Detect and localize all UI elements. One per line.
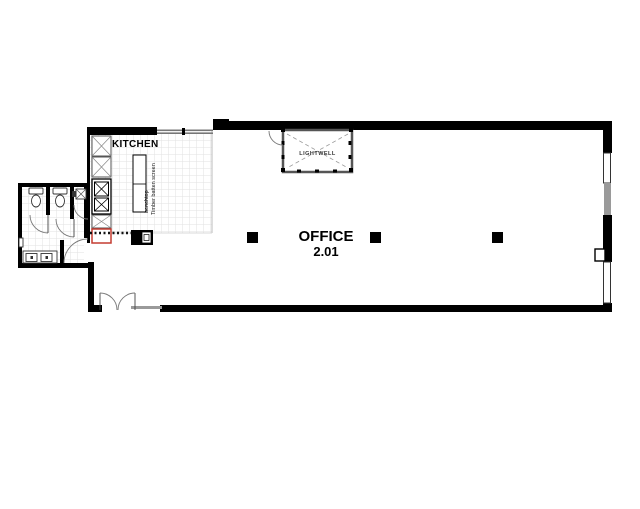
bathroom-top-wall [20, 183, 88, 187]
column-marker [370, 232, 381, 243]
fridge-red-outline [92, 229, 111, 243]
wc-partition-1 [46, 187, 50, 215]
right-wall-pier-notch [595, 249, 605, 261]
vanity-basins [23, 251, 57, 263]
wall-fixture [19, 238, 23, 247]
lightwell-label: LIGHTWELL [299, 151, 336, 157]
bottom-wall [160, 305, 612, 312]
floor-plan: LIGHTWELL [0, 0, 640, 509]
column-marker [492, 232, 503, 243]
entry-double-door [100, 293, 135, 310]
right-wall-upper [603, 121, 612, 153]
lightwell-door-arc [269, 131, 283, 145]
lightwell-shaft: LIGHTWELL [281, 128, 353, 173]
vanity-partition [60, 240, 64, 263]
right-wall-gray-panel [604, 183, 611, 215]
column-marker [247, 232, 258, 243]
bathroom-west-wall [18, 183, 22, 268]
west-wall-lower [88, 262, 94, 312]
right-window-upper [604, 153, 611, 183]
kitchen-top-wall [87, 127, 157, 135]
floor-plan-drawing: LIGHTWELL [0, 0, 640, 509]
columns [247, 232, 503, 243]
top-wall [213, 121, 612, 130]
timber-batten-screen-label: Timber batten screen [151, 163, 157, 215]
kitchen-label: KITCHEN [112, 139, 159, 150]
bottom-threshold [131, 306, 162, 309]
entry-door-arc-left [100, 293, 117, 310]
right-window-lower [604, 262, 611, 303]
kitchen-window-mullion [182, 128, 185, 135]
benchtop-label: benchtop [144, 190, 150, 213]
bathroom-bottom-wall [18, 263, 94, 268]
services-box-panel [142, 232, 151, 243]
room-name-label: OFFICE [299, 228, 354, 245]
room-number-label: 2.01 [313, 244, 338, 259]
